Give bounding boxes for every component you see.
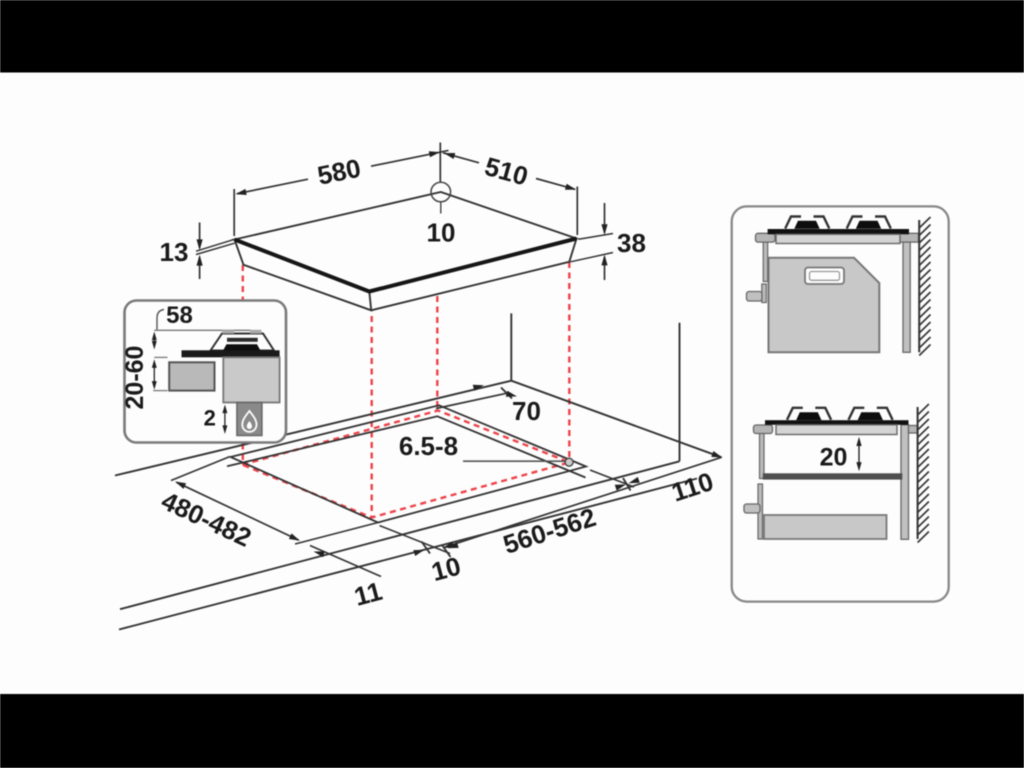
svg-text:10: 10 — [427, 217, 456, 247]
svg-text:2: 2 — [204, 405, 216, 430]
svg-text:58: 58 — [166, 302, 193, 329]
svg-text:70: 70 — [512, 396, 541, 426]
svg-text:20: 20 — [820, 444, 848, 472]
svg-text:20-60: 20-60 — [121, 346, 149, 410]
svg-text:13: 13 — [160, 237, 189, 267]
svg-text:6.5-8: 6.5-8 — [399, 431, 458, 461]
svg-text:38: 38 — [617, 228, 646, 258]
